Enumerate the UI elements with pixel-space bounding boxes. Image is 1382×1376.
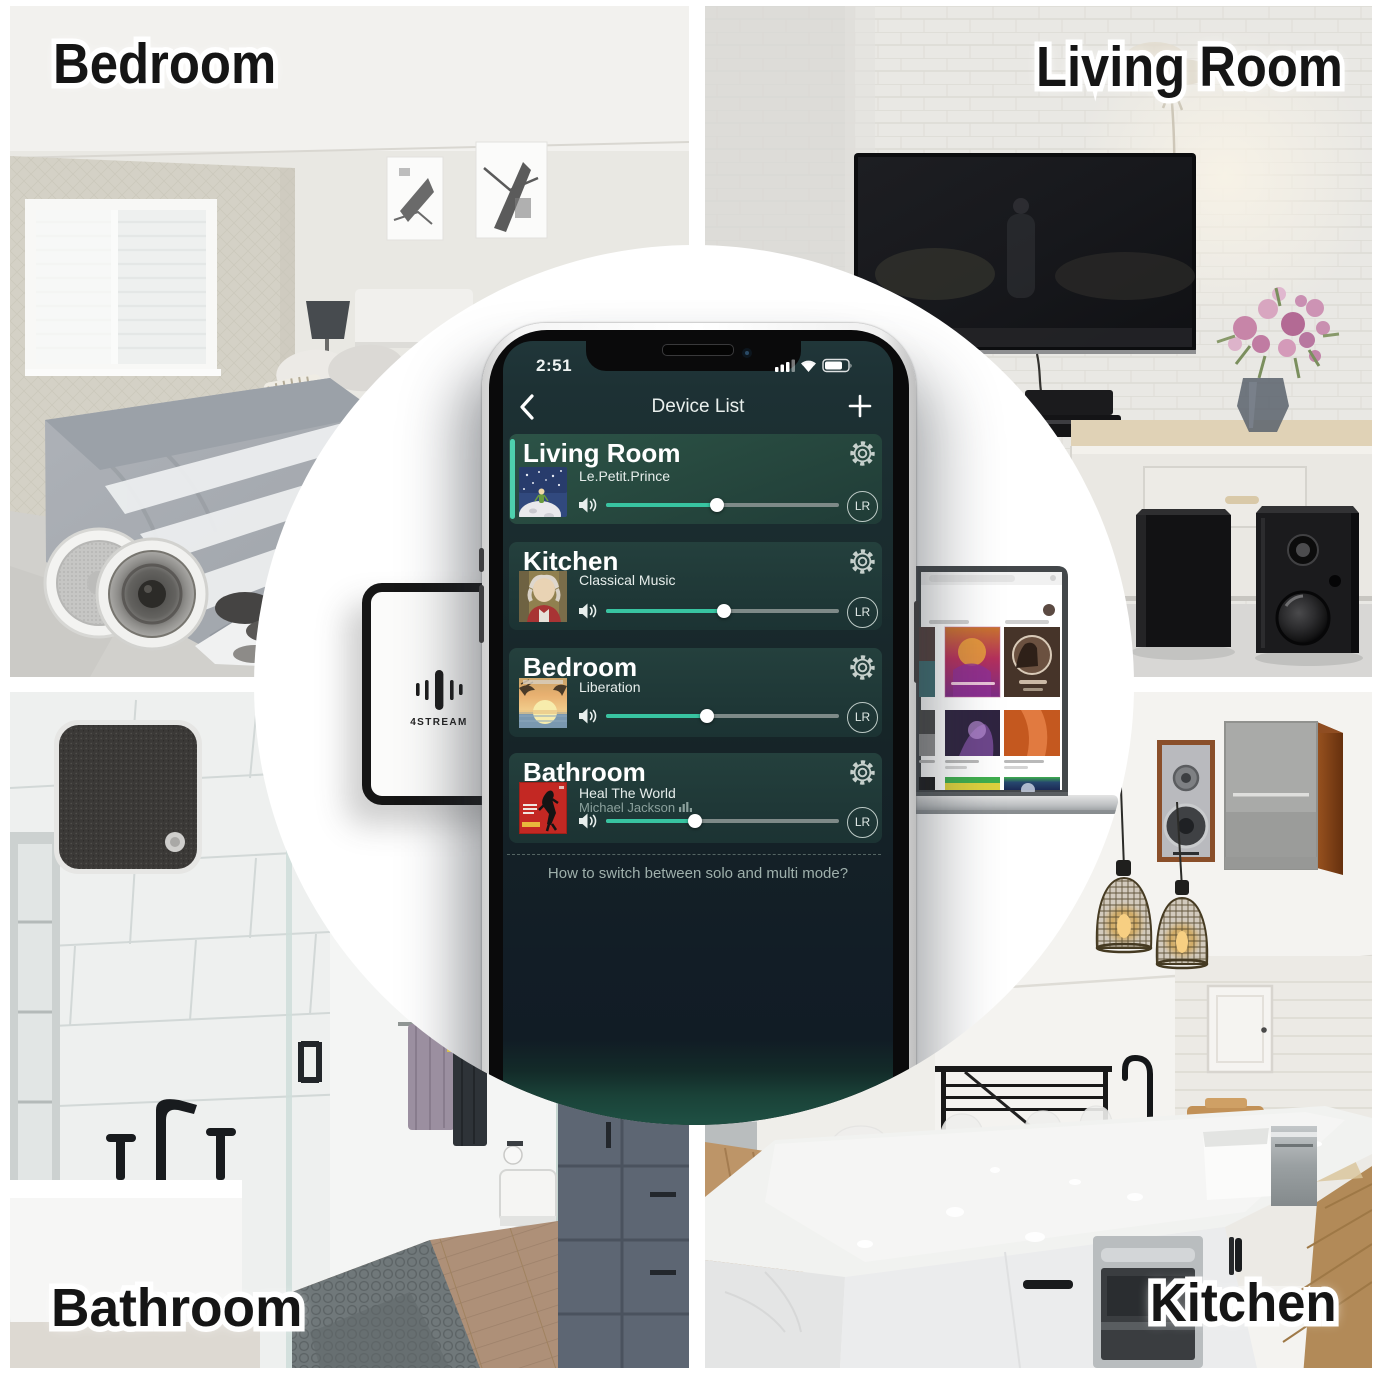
svg-text:4STREAM: 4STREAM	[410, 717, 468, 728]
